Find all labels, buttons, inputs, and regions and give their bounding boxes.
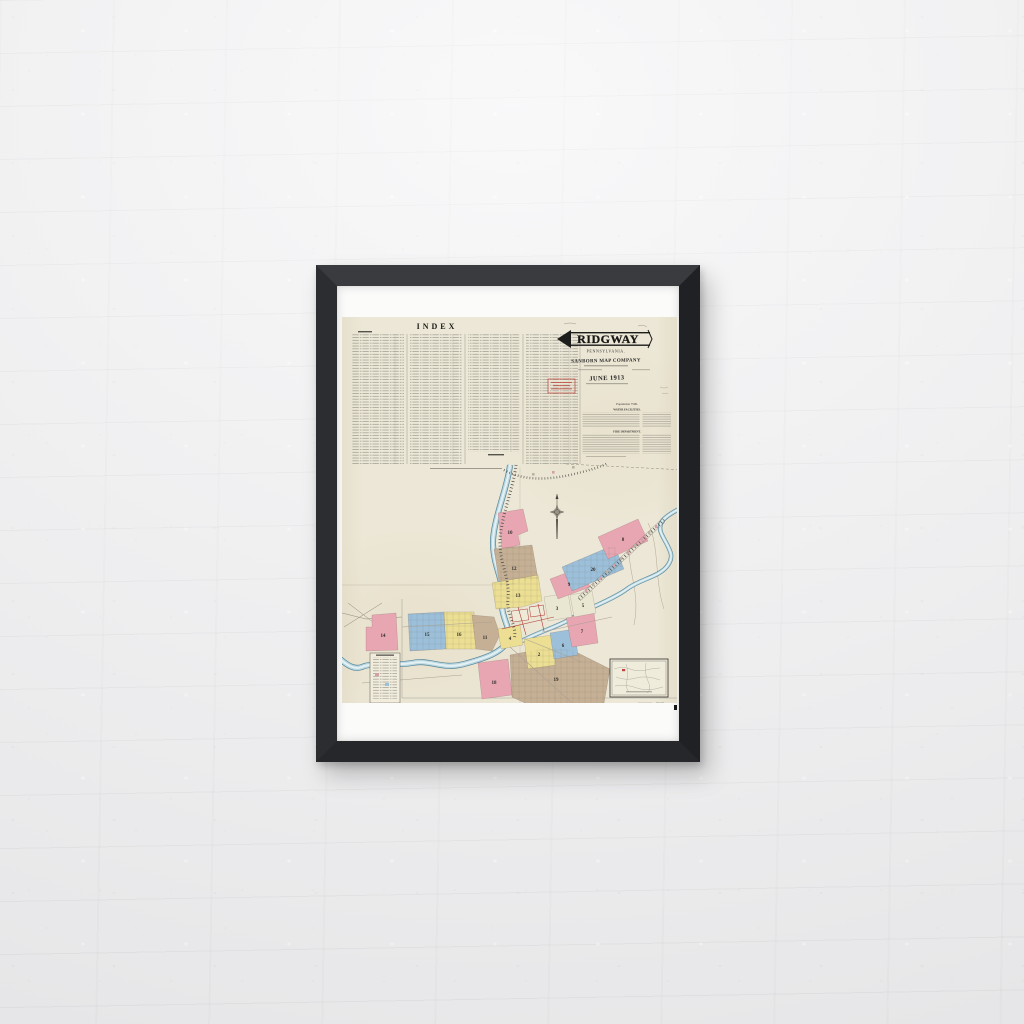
picture-frame: INDEX [316, 265, 700, 762]
title-state: PENNSYLVANIA. [587, 349, 626, 354]
district-block [472, 615, 500, 651]
index-column [410, 334, 462, 464]
district-number: 11 [483, 636, 488, 641]
compass-rose-icon [550, 494, 564, 539]
title-city: RIDGWAY [577, 332, 639, 346]
notes-block: Population 7500. WATER FACILITIES. FIRE … [582, 402, 671, 457]
index-footnote [430, 468, 502, 469]
notes-subheading-water: WATER FACILITIES. [613, 409, 641, 412]
map-paper: INDEX [342, 317, 677, 703]
inset-map [610, 659, 668, 697]
notes-heading: Population 7500. [616, 402, 638, 406]
scale-note [638, 702, 664, 703]
map-area: 10 12 13 14 15 16 11 18 19 2 6 7 [342, 463, 677, 703]
district-number: 19 [554, 678, 560, 683]
pencil-marks [660, 387, 668, 394]
index-title: INDEX [417, 322, 458, 331]
legend-box [370, 653, 400, 703]
index-column [352, 334, 404, 464]
notes-subheading-fire: FIRE DEPARTMENT. [613, 431, 641, 434]
title-date: JUNE 1913 [589, 374, 625, 382]
white-brick-wall: INDEX [0, 0, 1024, 1024]
inset-location-marker [622, 669, 625, 671]
district-block [498, 509, 528, 549]
sanborn-map-svg: INDEX [342, 317, 677, 703]
margin-speck [674, 705, 677, 710]
district-number: 12 [512, 567, 518, 572]
district-number: 18 [492, 681, 498, 686]
title-publisher: SANBORN MAP COMPANY [571, 358, 641, 364]
district-number: 15 [425, 633, 431, 638]
index-column [526, 334, 578, 464]
index-column [468, 334, 520, 452]
inset-caption [626, 692, 652, 693]
district-number: 13 [516, 594, 522, 599]
district-number: 16 [457, 633, 463, 638]
district-block [478, 659, 512, 699]
framed-print: INDEX [337, 286, 679, 741]
index-section: INDEX [352, 322, 580, 469]
district-number: 20 [591, 568, 597, 573]
district-number: 10 [508, 531, 514, 536]
district-number: 14 [381, 634, 387, 639]
